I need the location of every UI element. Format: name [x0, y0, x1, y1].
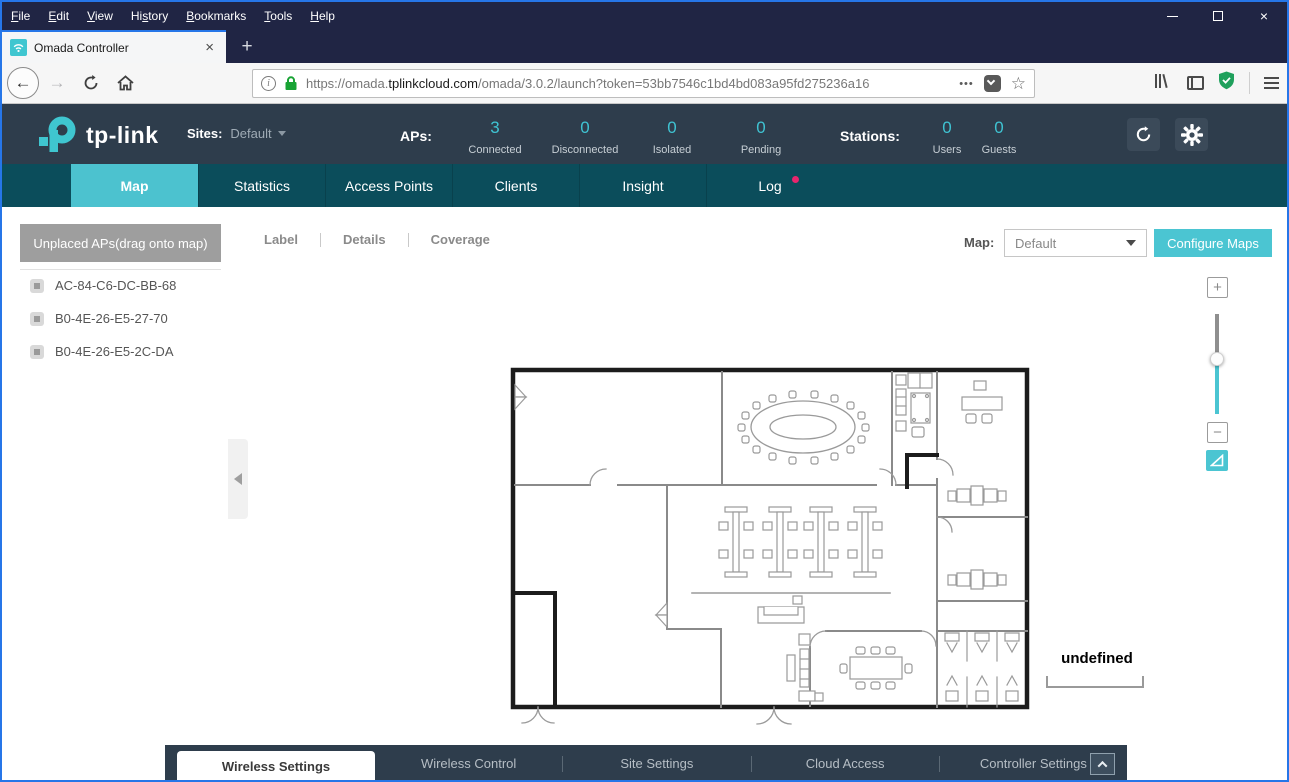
panel-collapse-handle[interactable]: [228, 439, 248, 519]
map-scale-tool-button[interactable]: [1206, 450, 1228, 471]
chevron-down-icon: [278, 131, 286, 136]
toolbar-separator: [1249, 72, 1250, 94]
tab-insight[interactable]: Insight: [579, 164, 706, 207]
menu-file[interactable]: File: [2, 2, 39, 30]
menu-bookmarks[interactable]: Bookmarks: [177, 2, 255, 30]
tp-link-logo: tp-link: [38, 116, 159, 154]
map-scale-bar: [1045, 675, 1145, 689]
aps-label: APs:: [400, 128, 432, 144]
map-page: Unplaced APs(drag onto map) AC-84-C6-DC-…: [2, 207, 1287, 745]
refresh-button[interactable]: [1127, 118, 1160, 151]
menu-hamburger-icon[interactable]: [1264, 77, 1279, 89]
ap-icon: [30, 312, 44, 326]
zoom-slider-thumb[interactable]: [1210, 352, 1224, 366]
maximize-icon: [1213, 11, 1223, 21]
stations-label: Stations:: [840, 128, 900, 144]
menu-help[interactable]: Help: [301, 2, 344, 30]
shield-icon[interactable]: [1218, 71, 1235, 95]
forward-button[interactable]: →: [43, 69, 71, 97]
triangle-ruler-icon: [1210, 454, 1224, 467]
gear-icon: [1181, 124, 1203, 146]
tab-close-icon[interactable]: ×: [201, 39, 218, 56]
minimize-icon: [1167, 16, 1178, 17]
tab-log[interactable]: Log: [706, 164, 833, 207]
back-button[interactable]: ←: [7, 67, 39, 99]
tab-site-settings[interactable]: Site Settings: [563, 756, 750, 771]
browser-tab-omada[interactable]: Omada Controller ×: [2, 30, 226, 63]
menu-view[interactable]: View: [78, 2, 122, 30]
tab-title: Omada Controller: [34, 41, 201, 55]
settings-button[interactable]: [1175, 118, 1208, 151]
stat-isolated: 0 Isolated: [627, 118, 717, 156]
lock-icon: [284, 76, 298, 91]
refresh-icon: [1134, 125, 1153, 144]
zoom-in-button[interactable]: +: [1207, 277, 1228, 298]
tab-access-points[interactable]: Access Points: [325, 164, 452, 207]
view-option-details[interactable]: Details: [321, 232, 408, 247]
browser-toolbar: ← → i https://omada.tplinkcloud.com/omad…: [2, 63, 1287, 104]
map-label: Map:: [964, 235, 994, 250]
page-actions-icon[interactable]: •••: [959, 78, 974, 90]
wifi-favicon-icon: [10, 39, 27, 56]
menu-edit[interactable]: Edit: [39, 2, 78, 30]
tab-clients[interactable]: Clients: [452, 164, 579, 207]
omada-header: tp-link Sites: Default APs: 3 Connected …: [2, 104, 1287, 164]
close-button[interactable]: ×: [1241, 2, 1287, 30]
browser-window: File Edit View History Bookmarks Tools H…: [0, 0, 1289, 782]
menu-tools[interactable]: Tools: [255, 2, 301, 30]
title-bar: File Edit View History Bookmarks Tools H…: [2, 2, 1287, 30]
stat-connected: 3 Connected: [450, 118, 540, 156]
ap-list-item[interactable]: B0-4E-26-E5-27-70: [30, 311, 168, 326]
settings-bottom-bar: Wireless Settings Wireless Control Site …: [165, 745, 1127, 782]
ap-list-item[interactable]: B0-4E-26-E5-2C-DA: [30, 344, 174, 359]
collapse-left-icon: [234, 473, 242, 485]
zoom-slider[interactable]: [1215, 314, 1219, 414]
reload-button[interactable]: [77, 69, 105, 97]
stat-guests: 0 Guests: [954, 118, 1044, 156]
tab-wireless-settings[interactable]: Wireless Settings: [177, 751, 375, 782]
tab-cloud-access[interactable]: Cloud Access: [752, 756, 939, 771]
maximize-button[interactable]: [1195, 2, 1241, 30]
select-caret-icon: [1126, 240, 1136, 246]
tp-link-logo-icon: [38, 116, 80, 154]
map-select[interactable]: Default: [1004, 229, 1147, 257]
library-icon[interactable]: [1153, 72, 1173, 95]
new-tab-button[interactable]: +: [234, 34, 260, 60]
ap-icon: [30, 279, 44, 293]
expand-settings-button[interactable]: [1090, 753, 1115, 775]
page-info-icon[interactable]: i: [261, 76, 276, 91]
url-text: https://omada.tplinkcloud.com/omada/3.0.…: [306, 76, 953, 91]
stat-pending: 0 Pending: [716, 118, 806, 156]
url-bar[interactable]: i https://omada.tplinkcloud.com/omada/3.…: [252, 69, 1035, 98]
home-button[interactable]: [111, 69, 139, 97]
tab-wireless-control[interactable]: Wireless Control: [375, 756, 562, 771]
sites-label: Sites:: [187, 126, 222, 141]
zoom-out-button[interactable]: −: [1207, 422, 1228, 443]
view-option-label[interactable]: Label: [262, 232, 320, 247]
pocket-icon[interactable]: [984, 75, 1001, 92]
site-selector[interactable]: Default: [230, 126, 271, 141]
ap-list-item[interactable]: AC-84-C6-DC-BB-68: [30, 278, 176, 293]
tab-strip: Omada Controller × +: [2, 30, 1287, 63]
configure-maps-button[interactable]: Configure Maps: [1154, 229, 1272, 257]
floor-plan-map[interactable]: [510, 367, 1030, 729]
log-badge: [792, 176, 799, 183]
bookmark-star-icon[interactable]: ☆: [1011, 74, 1026, 94]
omada-nav: Map Statistics Access Points Clients Ins…: [2, 164, 1287, 207]
ap-icon: [30, 345, 44, 359]
menu-history[interactable]: History: [122, 2, 177, 30]
map-scale-label: undefined: [1042, 650, 1152, 667]
tab-map[interactable]: Map: [71, 164, 198, 207]
chevron-up-icon: [1098, 760, 1108, 770]
view-option-coverage[interactable]: Coverage: [409, 232, 512, 247]
minimize-button[interactable]: [1149, 2, 1195, 30]
sidebar-icon[interactable]: [1187, 76, 1204, 90]
close-icon: ×: [1260, 9, 1268, 23]
stat-disconnected: 0 Disconnected: [540, 118, 630, 156]
tab-statistics[interactable]: Statistics: [198, 164, 325, 207]
unplaced-aps-button[interactable]: Unplaced APs(drag onto map): [20, 224, 221, 262]
